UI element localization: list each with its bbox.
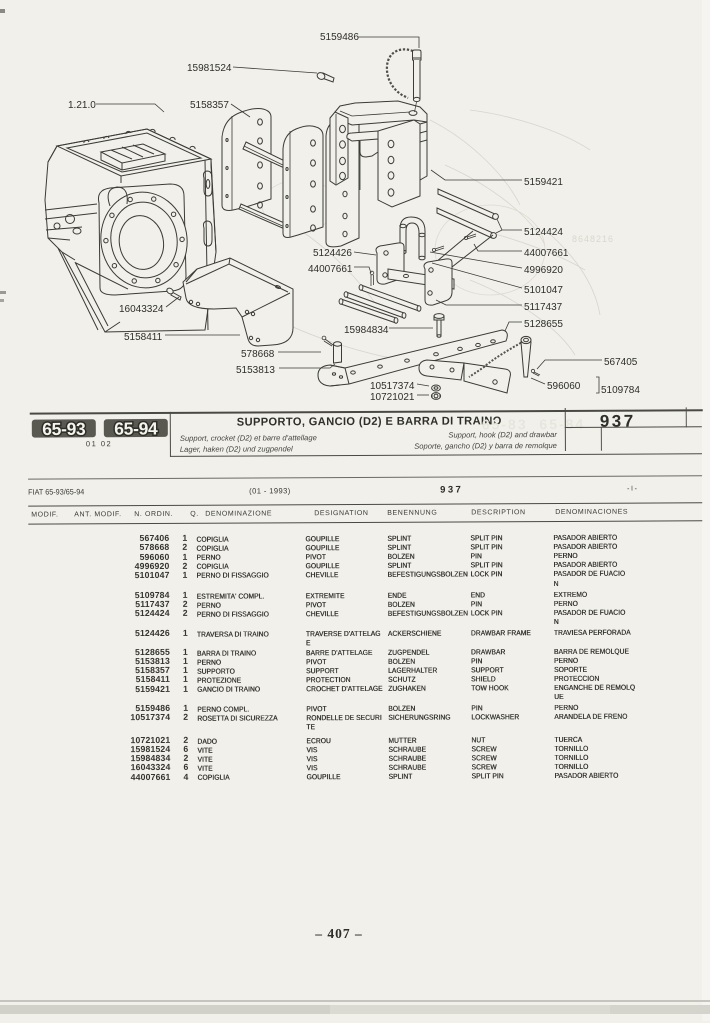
- svg-text:65-94: 65-94: [114, 418, 158, 438]
- svg-text:65-93: 65-93: [42, 419, 86, 439]
